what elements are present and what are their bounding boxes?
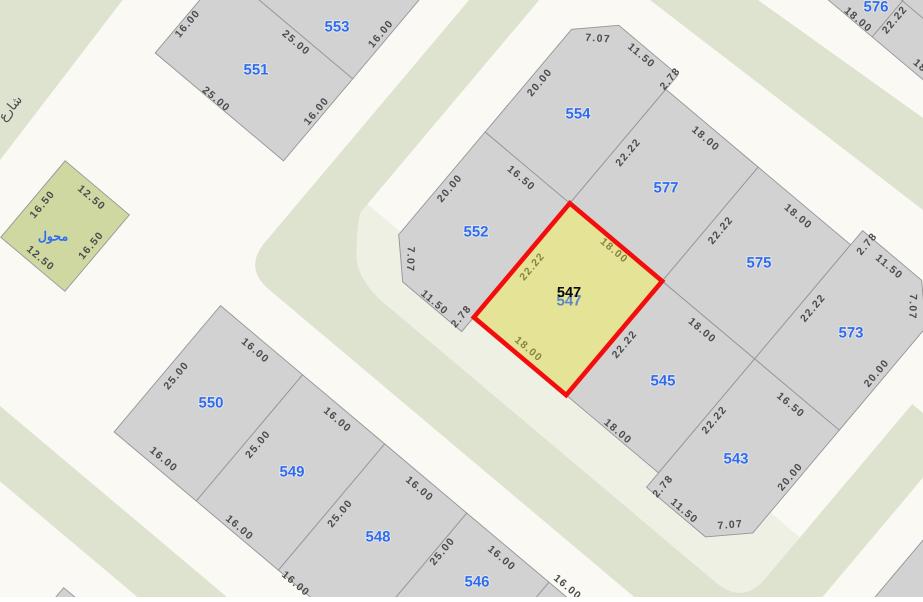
svg-text:576: 576 <box>863 0 888 15</box>
svg-text:545: 545 <box>650 372 675 389</box>
svg-text:548: 548 <box>365 528 390 545</box>
svg-text:553: 553 <box>324 18 349 35</box>
svg-text:552: 552 <box>463 223 488 240</box>
svg-text:محول: محول <box>38 229 68 244</box>
svg-text:577: 577 <box>653 179 678 196</box>
svg-text:573: 573 <box>838 324 863 341</box>
svg-text:551: 551 <box>243 61 268 78</box>
svg-text:543: 543 <box>723 450 748 467</box>
svg-text:550: 550 <box>198 394 223 411</box>
svg-text:547: 547 <box>557 285 581 301</box>
svg-text:549: 549 <box>279 463 304 480</box>
svg-text:7.07: 7.07 <box>585 32 612 46</box>
svg-text:7.07: 7.07 <box>717 518 744 532</box>
svg-text:7.07: 7.07 <box>404 246 417 272</box>
svg-text:546: 546 <box>464 573 489 590</box>
svg-text:575: 575 <box>746 254 771 271</box>
svg-text:554: 554 <box>565 105 591 122</box>
svg-text:7.07: 7.07 <box>906 294 919 320</box>
